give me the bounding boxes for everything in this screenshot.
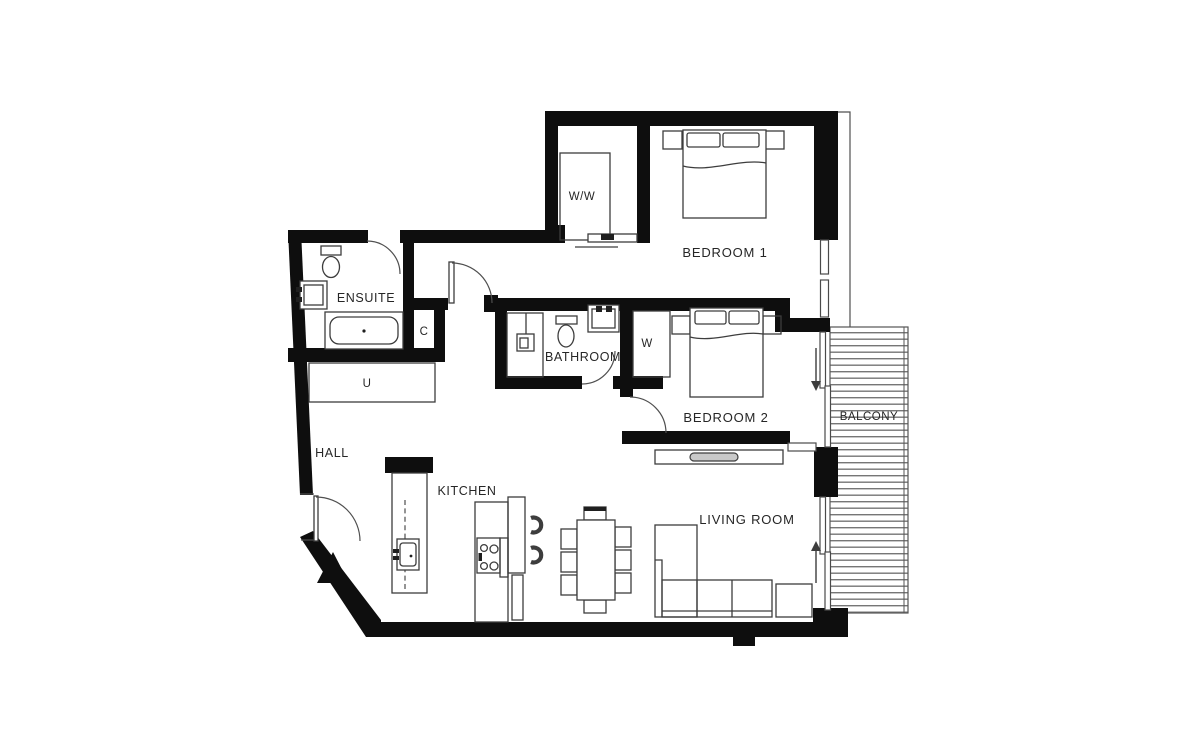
ensuite-washbasin-icon (296, 281, 327, 309)
bar-stools-icon (531, 517, 541, 562)
closet-label-utility: U (363, 378, 372, 390)
closet-label-wardrobe: W (641, 338, 652, 350)
hob-icon (477, 538, 508, 577)
bedroom1-bed-icon (663, 130, 784, 218)
dining-table-icon (561, 507, 631, 613)
kitchen-sink-icon (393, 539, 419, 570)
closet-label-cupboard: C (420, 326, 429, 338)
room-label-bedroom-2: BEDROOM 2 (683, 410, 768, 425)
windows (788, 240, 831, 610)
building-outline (838, 112, 850, 327)
sofa-icon (655, 525, 772, 617)
tv-unit-icon (655, 450, 783, 464)
shower-icon (507, 313, 543, 377)
bedroom2-door-icon (630, 397, 666, 433)
room-label-balcony: BALCONY (840, 411, 898, 423)
bathroom-toilet-icon (556, 316, 577, 347)
balcony-deck (830, 327, 908, 613)
room-label-bedroom-1: BEDROOM 1 (682, 245, 767, 260)
kitchen-counter-icon (392, 473, 427, 593)
bathroom-washbasin-icon (588, 305, 619, 332)
room-label-ensuite: ENSUITE (337, 291, 395, 305)
closet-label-walkin-wardrobe: W/W (569, 191, 595, 203)
bedroom2-bed-icon (672, 308, 781, 397)
room-label-hall: HALL (315, 446, 349, 460)
ensuite-door-icon (367, 241, 400, 274)
ensuite-toilet-icon (321, 246, 341, 278)
room-label-bathroom: BATHROOM (545, 350, 621, 364)
side-table-icon (776, 584, 812, 617)
floor-plan: BEDROOM 1 BEDROOM 2 BATHROOM ENSUITE KIT… (0, 0, 1200, 733)
room-label-kitchen: KITCHEN (437, 484, 496, 498)
bathtub-icon (325, 312, 403, 349)
room-label-living-room: LIVING ROOM (699, 512, 794, 527)
utility-cupboard (309, 363, 435, 402)
